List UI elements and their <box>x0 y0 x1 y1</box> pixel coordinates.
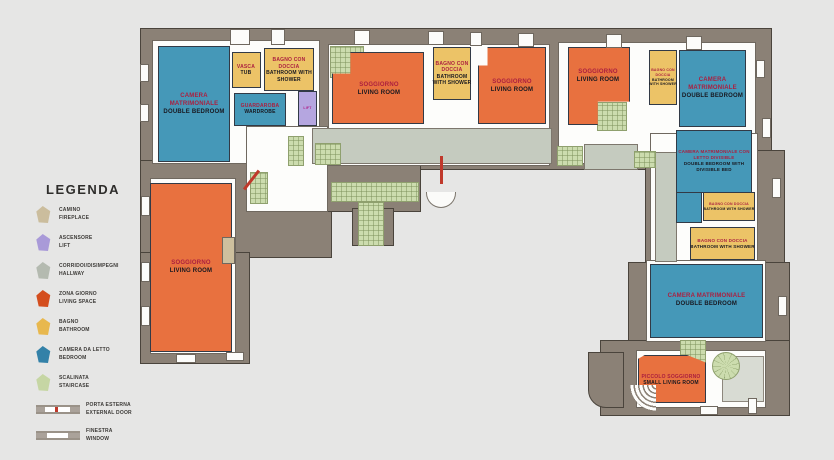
staircase-righttop <box>597 102 627 131</box>
legend-label-en: LIFT <box>59 243 92 251</box>
legend-label-en: WINDOW <box>86 436 113 444</box>
entrance-step-arc <box>426 192 456 208</box>
staircase-main-stem <box>358 202 384 246</box>
window <box>470 32 482 46</box>
lift-swatch-icon <box>36 234 51 251</box>
window <box>772 178 781 198</box>
legend-item-hallway: CORRIDOI/DISIMPEGNIHALLWAY <box>36 262 154 279</box>
bedroom-swatch-icon <box>36 346 51 363</box>
legend-label-it: PORTA ESTERNA <box>86 402 132 410</box>
window <box>762 118 771 138</box>
room-divisible-bedroom <box>676 130 752 193</box>
window <box>176 354 196 363</box>
legend-item-bedroom: CAMERA DA LETTOBEDROOM <box>36 346 154 363</box>
legend-item-staircase: SCALINATASTAIRCASE <box>36 374 154 391</box>
legend-label-en: BATHROOM <box>59 327 90 335</box>
legend-label-it: SCALINATA <box>59 375 89 383</box>
room-bathroom-topright <box>649 50 677 105</box>
room-double-bedroom-topright <box>679 50 746 127</box>
legend-label-en: EXTERNAL DOOR <box>86 410 132 418</box>
external-door-symbol-icon <box>36 405 80 414</box>
room-bathroom-topleft <box>264 48 314 91</box>
room-divisible-bedroom-ext <box>676 192 702 223</box>
window <box>354 30 370 45</box>
hallway-swatch-icon <box>36 262 51 279</box>
legend: LEGENDA CAMINOFIREPLACE ASCENSORELIFT CO… <box>36 182 154 454</box>
window <box>748 398 757 414</box>
legend-label-en: LIVING SPACE <box>59 299 97 307</box>
legend-label-en: HALLWAY <box>59 271 119 279</box>
external-door-marker <box>440 156 443 184</box>
legend-item-window: FINESTRAWINDOW <box>36 428 154 443</box>
window <box>226 352 244 361</box>
room-double-bedroom-topleft <box>158 46 230 162</box>
legend-label-it: ZONA GIORNO <box>59 291 97 299</box>
window <box>606 34 622 48</box>
window <box>686 36 702 50</box>
window-symbol-icon <box>36 431 80 440</box>
staircase-main-run <box>331 182 419 202</box>
room-bathroom-right2 <box>690 227 755 260</box>
window <box>700 406 718 415</box>
legend-label-it: FINESTRA <box>86 428 113 436</box>
fireplace <box>222 237 235 264</box>
room-lift <box>298 91 317 126</box>
window <box>230 29 250 45</box>
hallway-rightwing-vertical <box>655 152 677 262</box>
wall-entrance-bump <box>588 352 624 408</box>
window <box>140 64 149 82</box>
legend-item-external-door: PORTA ESTERNAEXTERNAL DOOR <box>36 402 154 417</box>
room-bathroom-midcenter <box>433 47 471 100</box>
staircase-landing-lift <box>288 136 304 166</box>
hallway-corridor-east <box>584 144 638 170</box>
legend-label-it: BAGNO <box>59 319 90 327</box>
legend-label-it: ASCENSORE <box>59 235 92 243</box>
window <box>141 196 150 216</box>
legend-item-fireplace: CAMINOFIREPLACE <box>36 206 154 223</box>
spiral-staircase <box>712 352 740 380</box>
hallway-main-corridor <box>312 128 552 164</box>
bathroom-swatch-icon <box>36 318 51 335</box>
staircase-landing-corridor1 <box>557 146 583 166</box>
legend-title: LEGENDA <box>46 182 154 197</box>
legend-label-it: CAMINO <box>59 207 89 215</box>
room-living-mid2 <box>478 47 546 124</box>
legend-label-en: STAIRCASE <box>59 383 89 391</box>
legend-item-bathroom: BAGNOBATHROOM <box>36 318 154 335</box>
fireplace-swatch-icon <box>36 206 51 223</box>
living-space-swatch-icon <box>36 290 51 307</box>
room-wardrobe <box>234 93 286 126</box>
legend-label-it: CORRIDOI/DISIMPEGNI <box>59 263 119 271</box>
room-tub <box>232 52 261 88</box>
staircase-swatch-icon <box>36 374 51 391</box>
legend-item-living-space: ZONA GIORNOLIVING SPACE <box>36 290 154 307</box>
window <box>271 29 285 45</box>
window <box>141 262 150 282</box>
room-bathroom-right1 <box>703 192 755 221</box>
staircase-landing-corridor2 <box>634 151 656 168</box>
legend-label-en: BEDROOM <box>59 355 110 363</box>
legend-label-en: FIREPLACE <box>59 215 89 223</box>
window <box>428 31 444 45</box>
room-double-bedroom-bottomright <box>650 264 763 338</box>
window <box>778 296 787 316</box>
window <box>141 306 150 326</box>
staircase-landing-corridor-west <box>315 143 341 165</box>
legend-item-lift: ASCENSORELIFT <box>36 234 154 251</box>
window <box>756 60 765 78</box>
floorplan-canvas: LEGENDA CAMINOFIREPLACE ASCENSORELIFT CO… <box>0 0 834 460</box>
legend-label-it: CAMERA DA LETTO <box>59 347 110 355</box>
room-living-leftwing <box>150 183 232 352</box>
window <box>140 104 149 122</box>
window <box>518 33 534 47</box>
